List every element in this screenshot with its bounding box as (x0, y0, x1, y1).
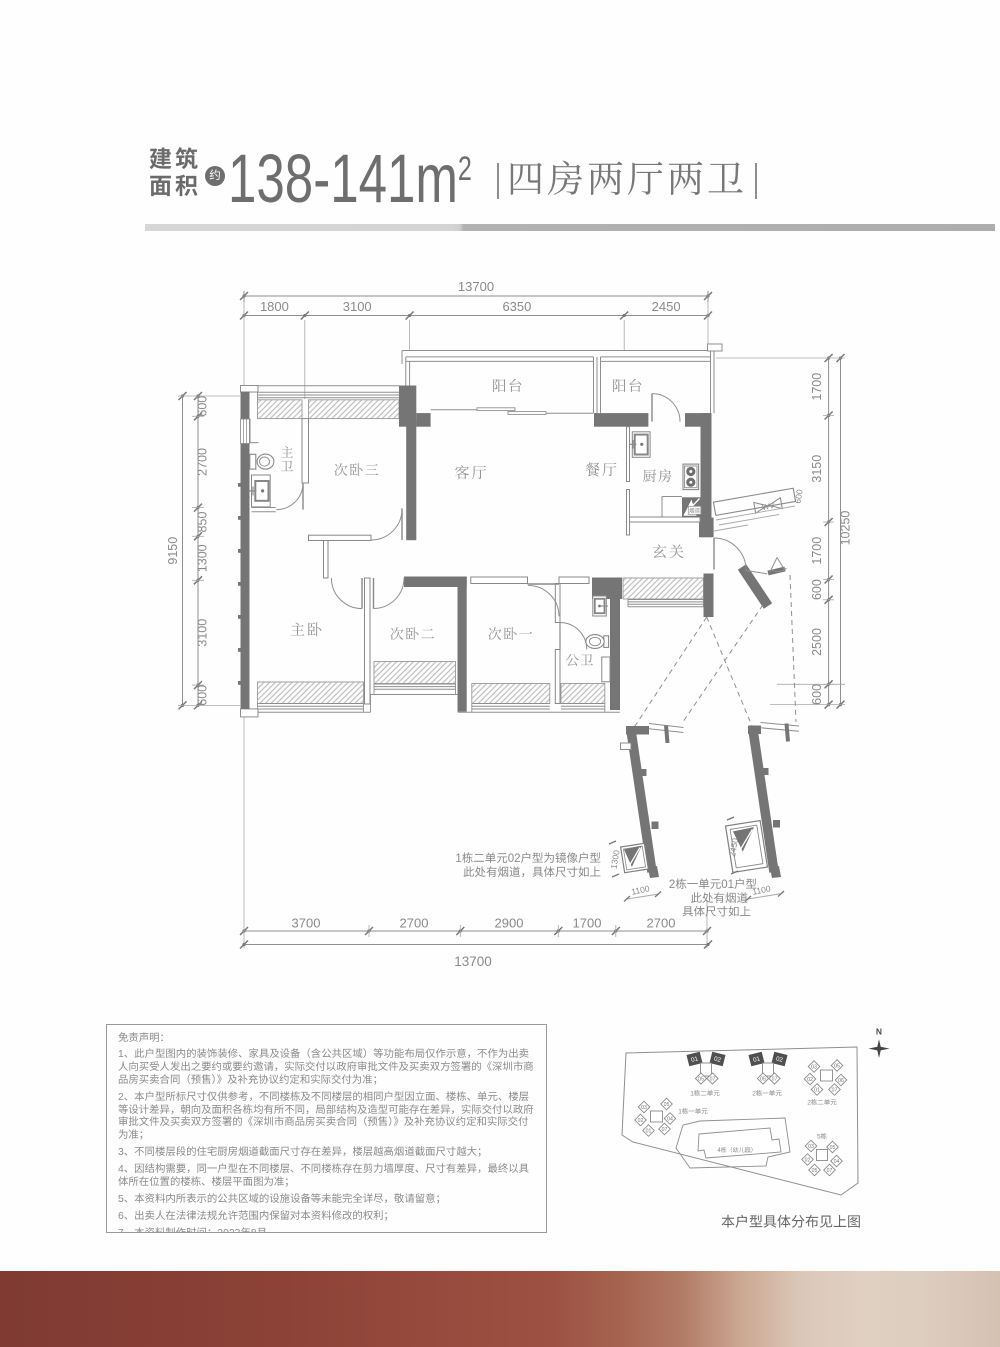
svg-text:13700: 13700 (458, 279, 494, 294)
svg-text:具体尺寸如上: 具体尺寸如上 (682, 906, 751, 919)
svg-text:1800: 1800 (260, 299, 289, 314)
svg-text:600: 600 (810, 684, 824, 705)
svg-text:600: 600 (810, 579, 824, 600)
svg-text:02: 02 (638, 1118, 644, 1124)
svg-text:600: 600 (196, 685, 210, 706)
svg-text:2500: 2500 (810, 628, 824, 656)
svg-text:10250: 10250 (839, 511, 853, 546)
svg-text:1700: 1700 (810, 373, 824, 401)
svg-text:N: N (876, 1027, 882, 1037)
svg-text:05: 05 (812, 1168, 818, 1174)
svg-text:2900: 2900 (495, 916, 524, 931)
svg-text:3700: 3700 (292, 916, 321, 931)
svg-text:2700: 2700 (196, 448, 210, 476)
svg-text:600: 600 (792, 488, 804, 504)
svg-text:4栋（幼儿园）: 4栋（幼儿园） (717, 1146, 756, 1154)
svg-text:05: 05 (698, 1076, 704, 1082)
svg-text:2700: 2700 (647, 916, 676, 931)
svg-text:1700: 1700 (810, 537, 824, 565)
svg-text:次卧二: 次卧二 (390, 627, 437, 643)
svg-text:07: 07 (827, 1168, 833, 1174)
svg-text:9150: 9150 (166, 537, 180, 565)
svg-text:1700: 1700 (573, 916, 602, 931)
svg-text:3100: 3100 (343, 299, 372, 314)
svg-text:05: 05 (664, 1102, 670, 1108)
svg-text:1栋二单元: 1栋二单元 (690, 1090, 720, 1098)
svg-text:公卫: 公卫 (566, 653, 595, 668)
svg-text:2450: 2450 (652, 299, 681, 314)
svg-text:玄关: 玄关 (652, 544, 686, 561)
svg-text:本户型具体分布见上图: 本户型具体分布见上图 (721, 1214, 861, 1230)
svg-text:02: 02 (805, 1157, 811, 1163)
svg-text:01: 01 (814, 1087, 820, 1093)
svg-text:06: 06 (838, 1078, 844, 1084)
svg-text:1100: 1100 (630, 883, 650, 897)
svg-text:07: 07 (772, 1076, 778, 1082)
svg-text:2栋二单元: 2栋二单元 (807, 1099, 837, 1107)
svg-text:03: 03 (811, 1064, 817, 1070)
svg-text:850: 850 (196, 512, 210, 533)
svg-text:2700: 2700 (400, 916, 429, 931)
svg-text:餐厅: 餐厅 (585, 462, 619, 479)
svg-text:600: 600 (196, 396, 210, 417)
svg-text:2栋一单元01户型: 2栋一单元01户型 (669, 878, 757, 891)
svg-text:卫: 卫 (280, 459, 293, 474)
svg-text:04: 04 (834, 1159, 840, 1165)
svg-text:05: 05 (830, 1145, 836, 1151)
svg-text:1栋二单元02户型为镜像户型: 1栋二单元02户型为镜像户型 (455, 852, 601, 865)
svg-text:厨房: 厨房 (643, 469, 674, 485)
svg-text:次卧一: 次卧一 (488, 627, 535, 643)
svg-text:05: 05 (760, 1076, 766, 1082)
svg-text:6350: 6350 (502, 299, 531, 314)
svg-text:3150: 3150 (810, 455, 824, 483)
svg-text:01: 01 (646, 1128, 652, 1134)
svg-text:05: 05 (834, 1063, 840, 1069)
svg-text:07: 07 (662, 1127, 668, 1133)
svg-text:07: 07 (710, 1076, 716, 1082)
svg-text:烟道: 烟道 (689, 508, 701, 515)
svg-text:2栋一单元: 2栋一单元 (752, 1090, 782, 1098)
svg-text:04: 04 (667, 1116, 673, 1122)
svg-text:1300: 1300 (196, 544, 210, 572)
svg-text:主卧: 主卧 (290, 622, 324, 639)
svg-text:阳台: 阳台 (612, 378, 644, 395)
svg-text:3100: 3100 (196, 619, 210, 647)
svg-text:阳台: 阳台 (492, 378, 524, 395)
svg-text:客厅: 客厅 (454, 465, 488, 482)
svg-text:主: 主 (280, 445, 293, 460)
svg-text:1300: 1300 (608, 849, 621, 870)
svg-text:03: 03 (808, 1144, 814, 1150)
svg-text:1栋一单元: 1栋一单元 (678, 1108, 708, 1116)
svg-text:此处有烟道: 此处有烟道 (691, 892, 749, 905)
svg-text:5栋: 5栋 (817, 1133, 828, 1141)
svg-text:03: 03 (641, 1105, 647, 1111)
svg-text:02: 02 (807, 1077, 813, 1083)
svg-text:此处有烟道，具体尺寸如上: 此处有烟道，具体尺寸如上 (463, 866, 601, 879)
svg-text:次卧三: 次卧三 (334, 463, 381, 479)
svg-text:07: 07 (832, 1087, 838, 1093)
svg-text:13700: 13700 (454, 954, 492, 969)
